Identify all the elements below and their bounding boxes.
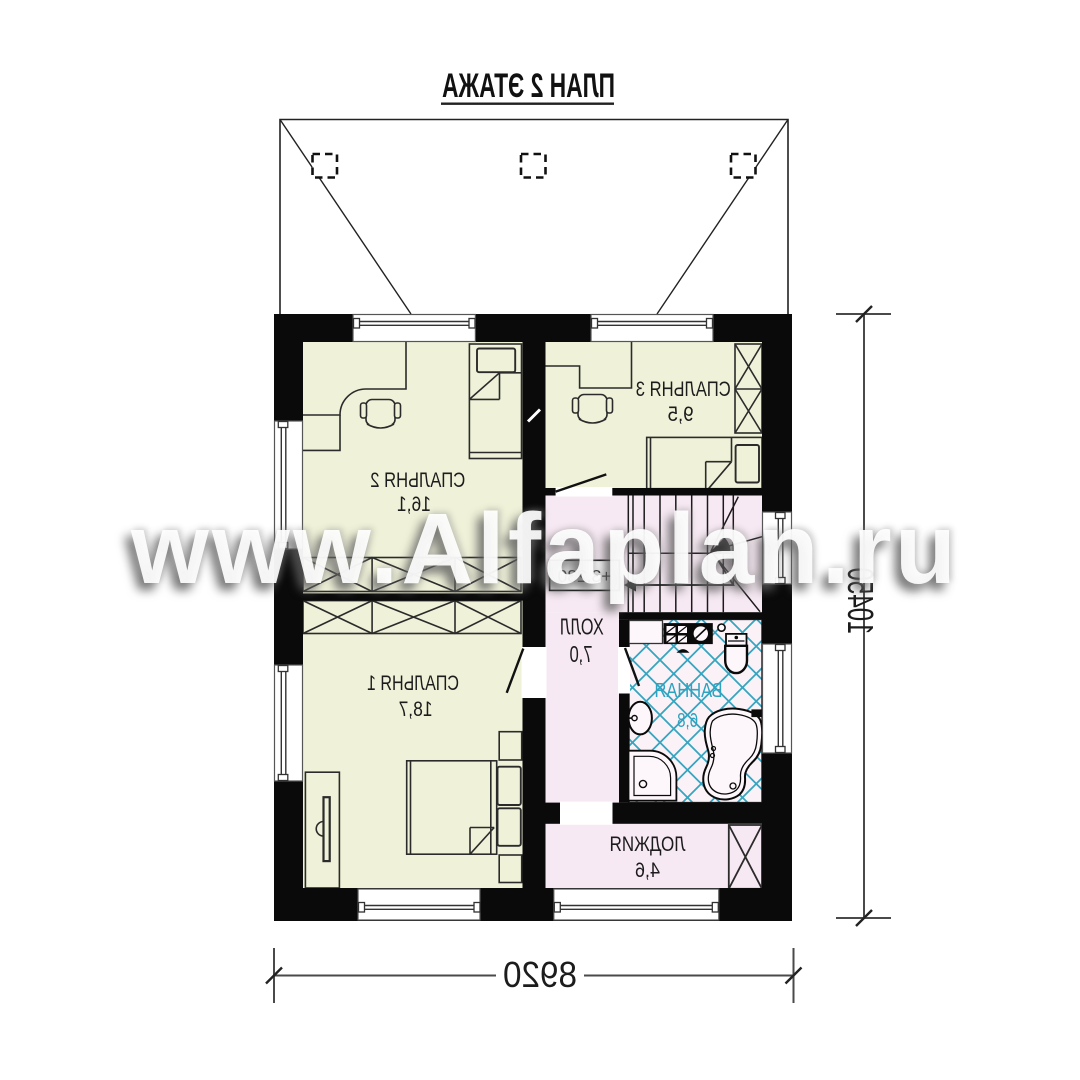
svg-text:6,8: 6,8 — [677, 710, 698, 732]
svg-text:СПАЛЬНЯ 1: СПАЛЬНЯ 1 — [367, 671, 459, 695]
svg-text:18,7: 18,7 — [399, 697, 433, 721]
svg-text:7,0: 7,0 — [570, 641, 593, 667]
svg-text:9,5: 9,5 — [668, 402, 694, 426]
svg-text:ЛОДЖИЯ: ЛОДЖИЯ — [610, 832, 686, 856]
svg-text:СПАЛЬНЯ 2: СПАЛЬНЯ 2 — [370, 468, 465, 492]
svg-text:4,6: 4,6 — [635, 858, 660, 882]
svg-text:ВАННАЯ: ВАННАЯ — [655, 680, 723, 702]
svg-text:ХОЛЛ: ХОЛЛ — [560, 614, 604, 640]
svg-text:СПАЛЬНЯ 3: СПАЛЬНЯ 3 — [636, 377, 731, 401]
svg-text:8920: 8920 — [503, 954, 577, 995]
svg-text:ПЛАН 2 ЭТАЖА: ПЛАН 2 ЭТАЖА — [442, 67, 615, 105]
